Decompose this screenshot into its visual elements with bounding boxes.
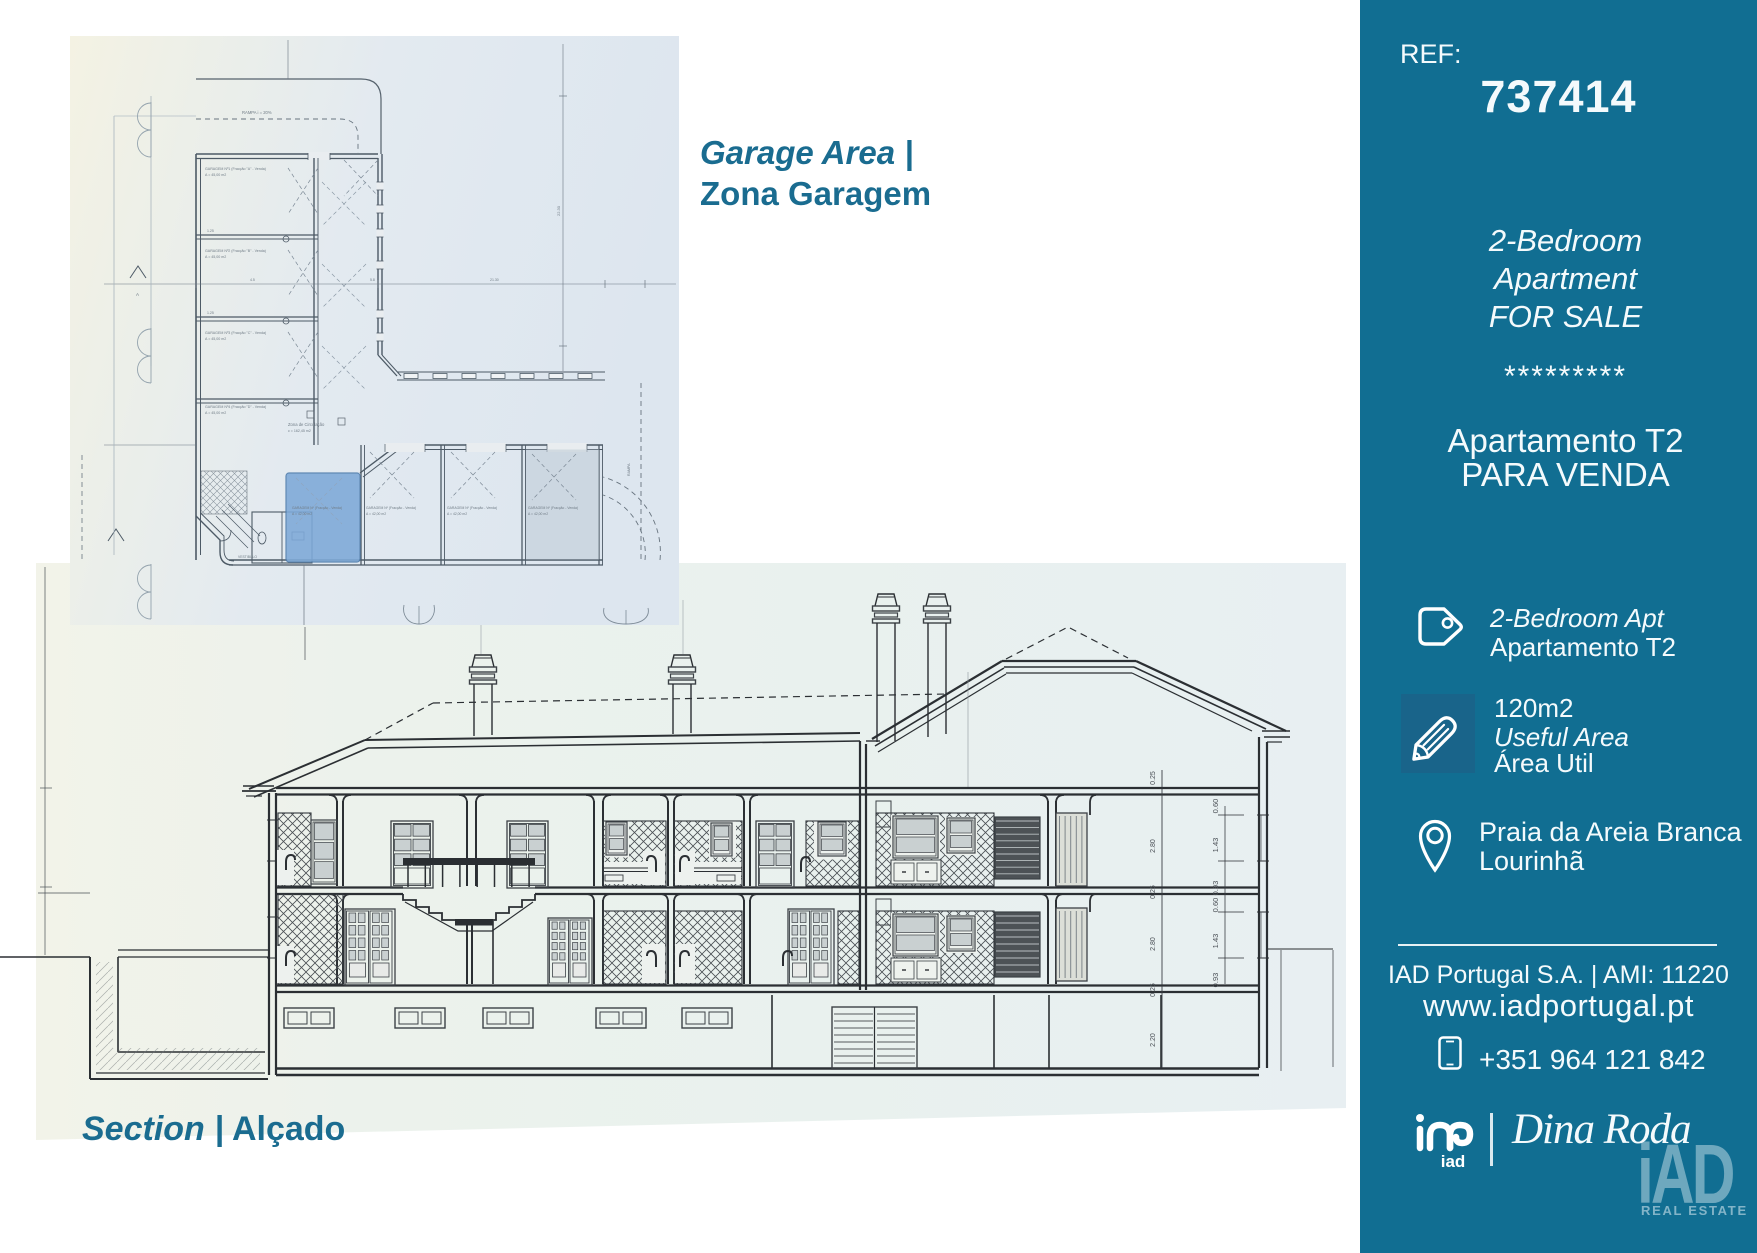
svg-text:2.20: 2.20 (1150, 1033, 1157, 1047)
svg-text:GARAGEM Nº (Fracção - Venda): GARAGEM Nº (Fracção - Venda) (366, 506, 416, 510)
svg-text:21.30: 21.30 (490, 278, 499, 282)
svg-text:iad: iad (1441, 1152, 1466, 1170)
svg-text:1.25: 1.25 (207, 229, 214, 233)
svg-text:0.25: 0.25 (1150, 983, 1157, 997)
svg-text:A = 42,00 m2: A = 42,00 m2 (292, 512, 312, 516)
svg-text:0.60: 0.60 (1211, 799, 1220, 814)
svg-text:Zona de Circulação: Zona de Circulação (288, 422, 325, 427)
svg-text:A = 42,00 m2: A = 42,00 m2 (528, 512, 548, 516)
svg-text:5.8: 5.8 (370, 278, 375, 282)
svg-text:GARAGEM Nº (Fracção - Venda): GARAGEM Nº (Fracção - Venda) (528, 506, 578, 510)
svg-text:A = 42,00 m2: A = 42,00 m2 (366, 512, 386, 516)
svg-text:GARAGEM Nº2 (Fracção "B" - Ven: GARAGEM Nº2 (Fracção "B" - Venda) (205, 249, 266, 253)
svg-text:1.25: 1.25 (207, 311, 214, 315)
svg-text:A: A (136, 292, 139, 297)
svg-text:GARAGEM Nº (Fracção - Venda): GARAGEM Nº (Fracção - Venda) (292, 506, 342, 510)
svg-text:0.60: 0.60 (1211, 898, 1220, 913)
svg-text:GARAGEM Nº4 (Fracção "D" - Ven: GARAGEM Nº4 (Fracção "D" - Venda) (205, 405, 266, 409)
svg-text:A = 45,00 m2: A = 45,00 m2 (205, 411, 226, 415)
svg-text:VESTIBULO: VESTIBULO (238, 555, 257, 559)
svg-text:4.5: 4.5 (250, 278, 255, 282)
svg-text:GARAGEM Nº (Fracção - Venda): GARAGEM Nº (Fracção - Venda) (447, 506, 497, 510)
svg-text:2.80: 2.80 (1150, 839, 1157, 853)
svg-text:0.25: 0.25 (1150, 771, 1157, 785)
svg-text:2.80: 2.80 (1150, 937, 1157, 951)
svg-text:A = 45,00 m2: A = 45,00 m2 (205, 173, 226, 177)
svg-text:A = 42,00 m2: A = 42,00 m2 (447, 512, 467, 516)
svg-text:0.25: 0.25 (1150, 885, 1157, 899)
svg-text:22.30: 22.30 (556, 205, 561, 216)
svg-text:GARAGEM Nº3 (Fracção "C" - Ven: GARAGEM Nº3 (Fracção "C" - Venda) (205, 331, 266, 335)
svg-text:GARAGEM Nº1 (Fracção "A" - Ven: GARAGEM Nº1 (Fracção "A" - Venda) (205, 167, 266, 171)
svg-text:A = 45,00 m2: A = 45,00 m2 (205, 337, 226, 341)
svg-text:RAMPA: RAMPA (627, 463, 631, 476)
svg-text:1.43: 1.43 (1211, 934, 1220, 949)
svg-text:1.43: 1.43 (1211, 838, 1220, 853)
svg-text:RAMPA i = 20%: RAMPA i = 20% (242, 110, 272, 115)
svg-text:c = 162,45 m2: c = 162,45 m2 (288, 429, 311, 433)
svg-text:A = 45,00 m2: A = 45,00 m2 (205, 255, 226, 259)
svg-text:0.93: 0.93 (1211, 973, 1220, 988)
svg-text:0.93: 0.93 (1211, 881, 1220, 896)
